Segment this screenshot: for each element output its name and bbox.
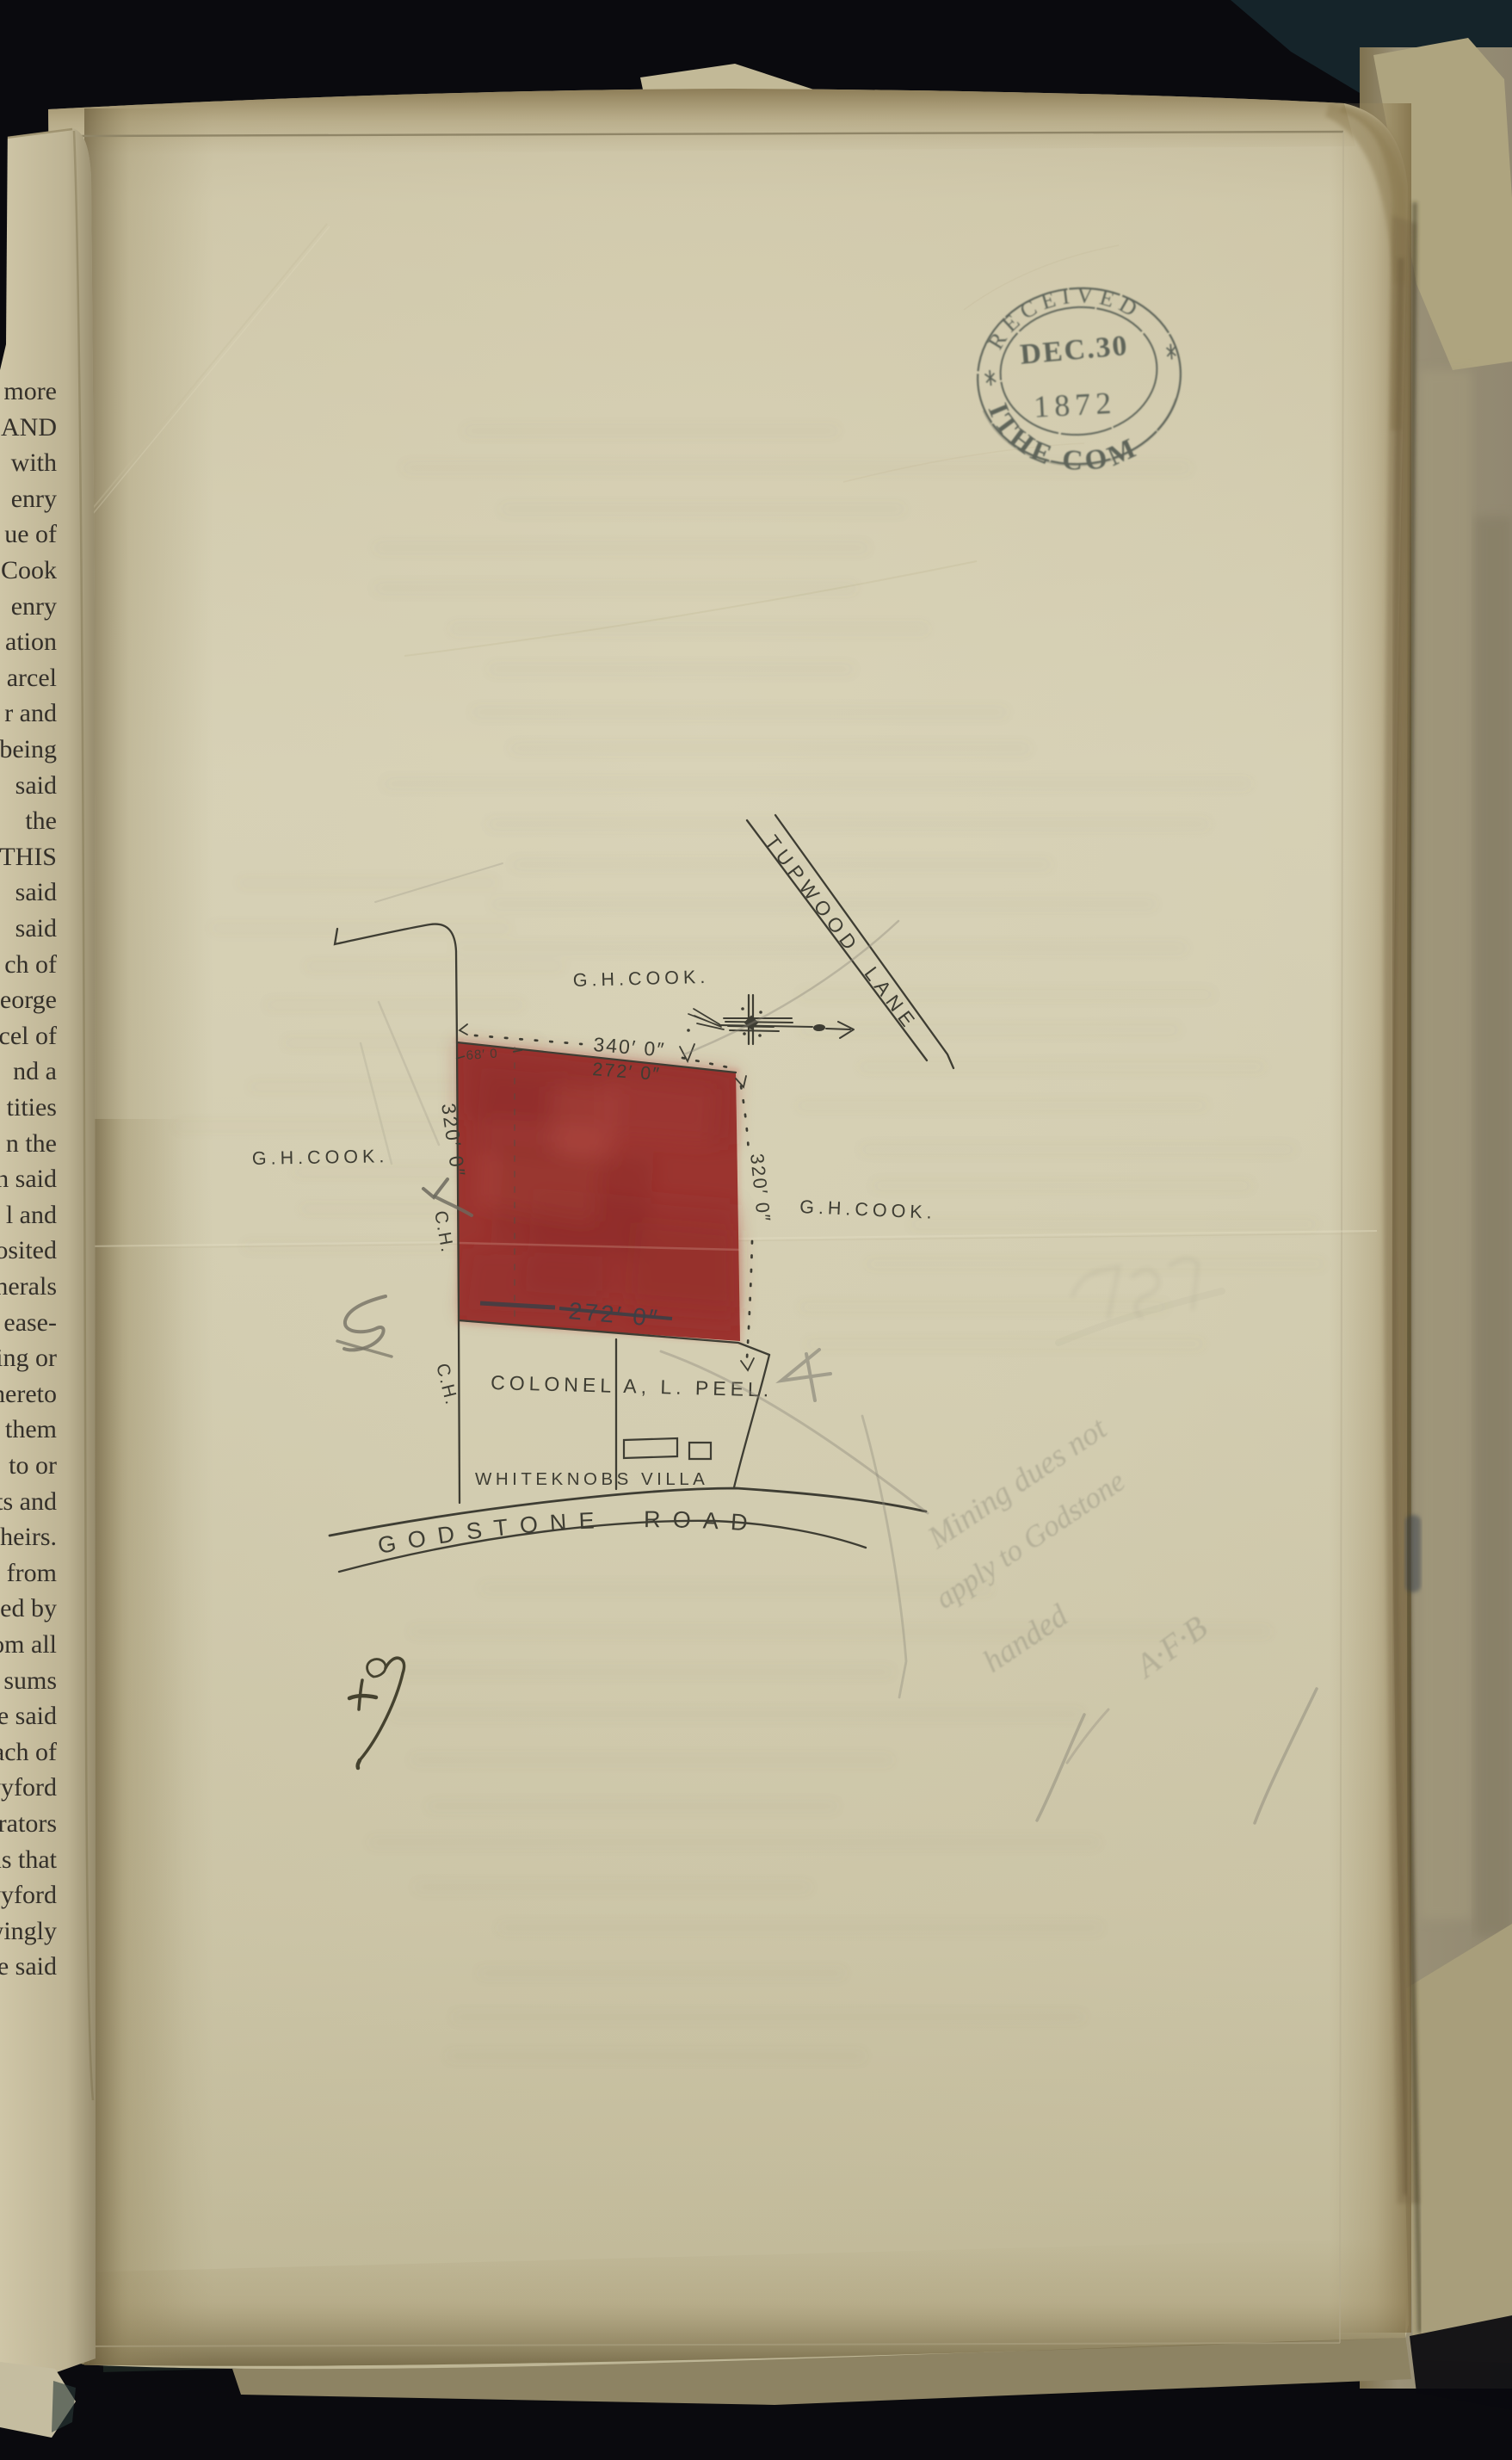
svg-text:ing or: ing or	[0, 1344, 57, 1372]
svg-text:said: said	[15, 914, 57, 943]
svg-text:each of: each of	[0, 1738, 57, 1766]
svg-text:said: said	[15, 771, 57, 800]
svg-text:l and: l and	[6, 1201, 57, 1229]
svg-text:he said: he said	[0, 1952, 57, 1981]
svg-text:G.H.COOK.: G.H.COOK.	[573, 967, 710, 991]
svg-text:said: said	[15, 878, 57, 906]
svg-text:om all: om all	[0, 1630, 57, 1659]
svg-text:h said: h said	[0, 1165, 57, 1193]
svg-text:with: with	[11, 448, 57, 477]
svg-text:strators: strators	[0, 1809, 57, 1838]
svg-text:nd a: nd a	[13, 1057, 57, 1085]
svg-text:nerals: nerals	[0, 1272, 57, 1301]
svg-text:ts and: ts and	[0, 1487, 57, 1516]
svg-text:more: more	[3, 377, 57, 405]
svg-text:AND: AND	[1, 413, 57, 442]
svg-text:hereto: hereto	[0, 1380, 57, 1408]
svg-text:wyford: wyford	[0, 1773, 57, 1802]
svg-text:Cook: Cook	[1, 556, 57, 584]
svg-text:sums: sums	[3, 1666, 57, 1695]
svg-text:to or: to or	[9, 1451, 57, 1480]
svg-text:ation: ation	[5, 627, 57, 656]
svg-text:ease-: ease-	[3, 1308, 57, 1337]
svg-text:68′ 0: 68′ 0	[466, 1046, 498, 1063]
svg-text:arcel: arcel	[7, 664, 57, 692]
svg-text:1872: 1872	[1033, 386, 1117, 424]
svg-text:enry: enry	[11, 485, 57, 513]
svg-text:n the: n the	[6, 1129, 57, 1158]
svg-text:red by: red by	[0, 1594, 57, 1622]
svg-text:enry: enry	[11, 592, 57, 621]
svg-text:ch of: ch of	[4, 950, 57, 979]
svg-text:e said: e said	[0, 1702, 57, 1730]
svg-text:G.H.COOK.: G.H.COOK.	[252, 1146, 389, 1169]
svg-text:cel of: cel of	[0, 1022, 57, 1050]
svg-text:r and: r and	[4, 699, 57, 727]
svg-text:ns that: ns that	[0, 1845, 58, 1874]
svg-text:wyford: wyford	[0, 1881, 57, 1909]
svg-text:the: the	[25, 807, 57, 835]
svg-text:osited: osited	[0, 1236, 57, 1264]
svg-text:d from: d from	[0, 1559, 57, 1587]
svg-text:owingly: owingly	[0, 1917, 57, 1945]
svg-text:ue of: ue of	[4, 520, 57, 548]
svg-text:s heirs.: s heirs.	[0, 1523, 57, 1551]
svg-text:WHITEKNOBS VILLA: WHITEKNOBS VILLA	[475, 1469, 708, 1489]
svg-text:tities: tities	[7, 1093, 57, 1122]
svg-text:them: them	[5, 1415, 57, 1443]
svg-text:being: being	[0, 735, 57, 763]
svg-text:eorge: eorge	[0, 986, 57, 1014]
svg-text:THIS: THIS	[0, 843, 57, 871]
